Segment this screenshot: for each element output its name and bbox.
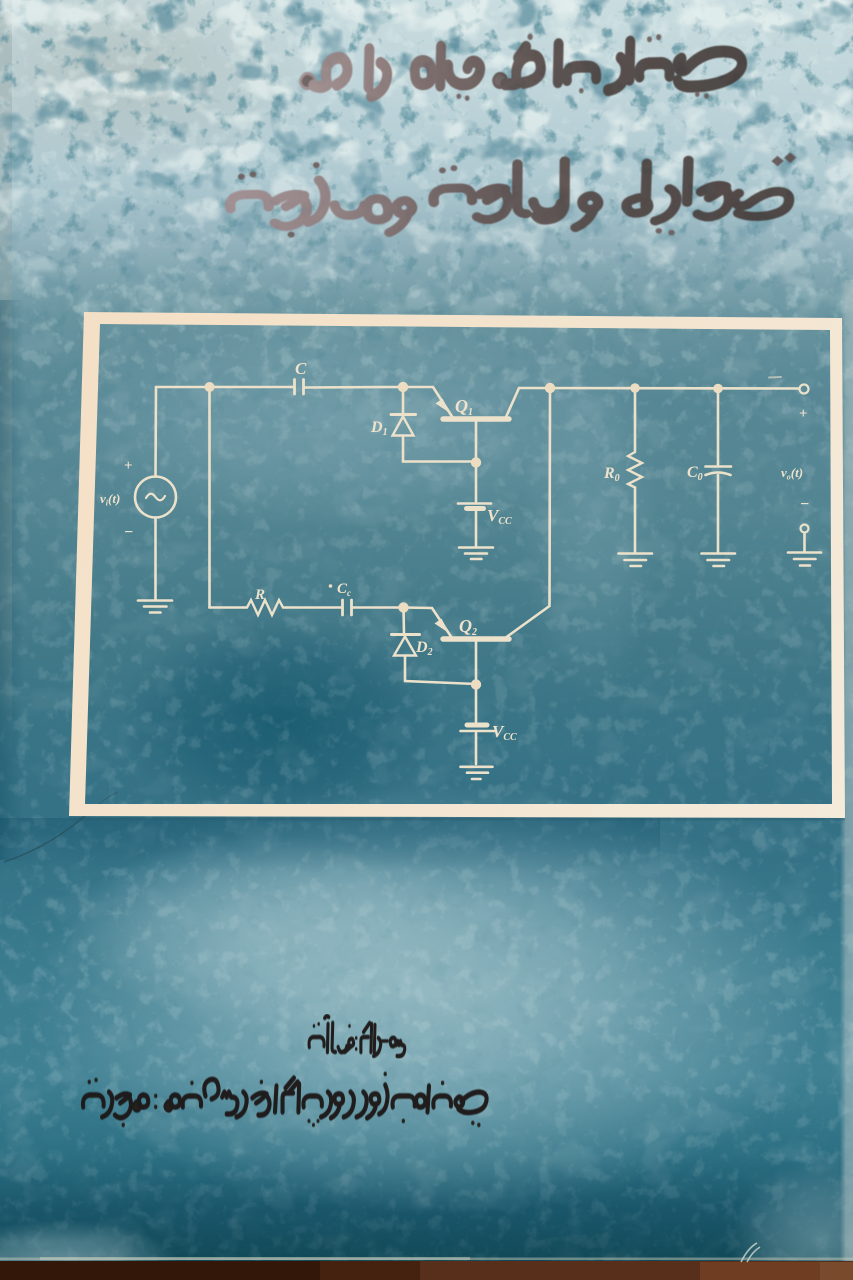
svg-text:+: + — [799, 406, 808, 422]
svg-text:vo(t): vo(t) — [781, 465, 803, 482]
svg-text:R: R — [254, 587, 265, 603]
svg-text:vi(t): vi(t) — [100, 491, 120, 508]
svg-text:+: + — [124, 458, 133, 474]
svg-text:C: C — [295, 359, 307, 378]
svg-text:−: − — [124, 524, 133, 541]
svg-text:−: − — [800, 496, 809, 513]
